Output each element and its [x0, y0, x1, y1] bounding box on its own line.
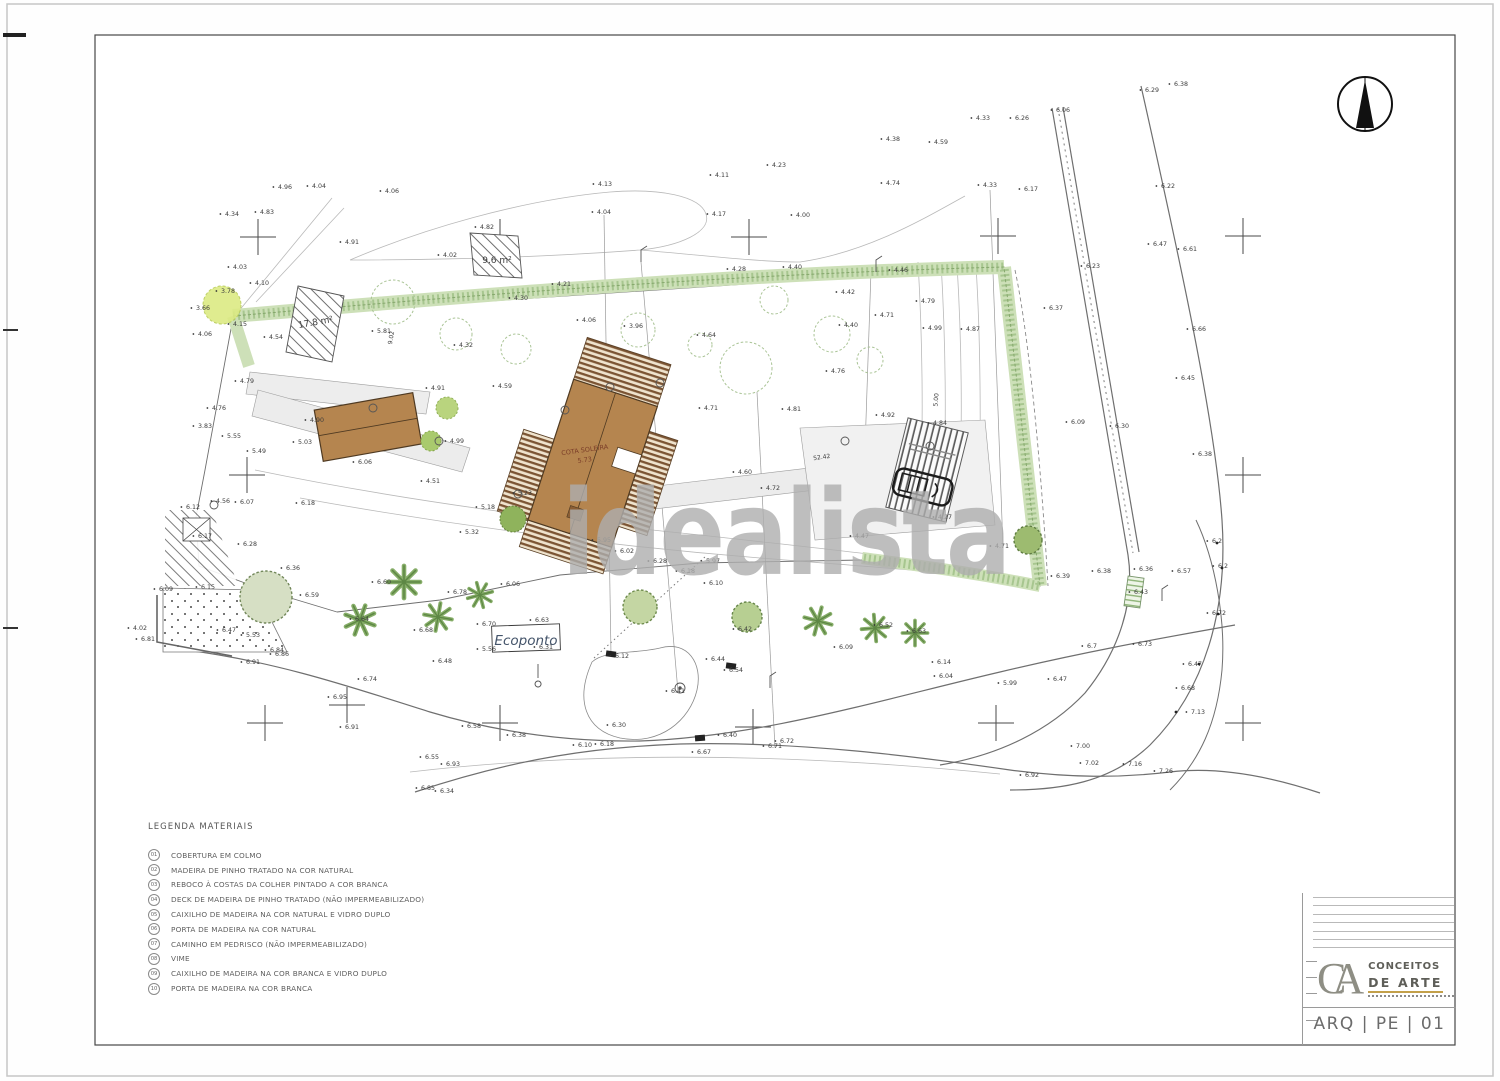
spot-elevation: 6.78 — [453, 589, 467, 596]
spot-point — [593, 183, 595, 185]
spot-elevation: 6.06 — [506, 581, 520, 588]
spot-point — [475, 226, 477, 228]
spot-elevation: 7.02 — [1085, 760, 1099, 767]
spot-point — [1051, 109, 1053, 111]
spot-elevation: 4.79 — [921, 298, 935, 305]
spot-point — [577, 319, 579, 321]
spot-elevation: 6.47 — [1153, 241, 1167, 248]
spot-point — [624, 325, 626, 327]
spot-point — [340, 241, 342, 243]
spot-point — [1178, 248, 1180, 250]
spot-elevation: 4.64 — [702, 332, 716, 339]
spot-point — [1156, 185, 1158, 187]
spot-elevation: 6.66 — [1192, 326, 1206, 333]
spot-elevation: 6.86 — [275, 651, 289, 658]
spot-point — [220, 213, 222, 215]
spot-elevation: 6.38 — [1198, 451, 1212, 458]
spot-point — [433, 660, 435, 662]
spot-elevation: 4.02 — [443, 252, 457, 259]
legend-item-label: CAMINHO EM PEDRISCO (NÃO IMPERMEABILIZAD… — [171, 940, 367, 949]
legend-item: 07CAMINHO EM PEDRISCO (NÃO IMPERMEABILIZ… — [148, 937, 424, 952]
spot-elevation: 4.23 — [772, 162, 786, 169]
spot-point — [978, 184, 980, 186]
legend-item-number: 05 — [148, 909, 160, 921]
spot-elevation: 6.74 — [363, 676, 377, 683]
spot-elevation: 5.99 — [1003, 680, 1017, 687]
spot-point — [462, 725, 464, 727]
spot-elevation: 6.44 — [711, 656, 725, 663]
spot-elevation: 6.91 — [345, 724, 359, 731]
spot-point — [1176, 377, 1178, 379]
spot-elevation: 4.33 — [976, 115, 990, 122]
spot-elevation: 4.17 — [712, 211, 726, 218]
spot-point — [270, 653, 272, 655]
spot-point — [834, 646, 836, 648]
spot-point — [1134, 568, 1136, 570]
spot-elevation: 4.46 — [894, 267, 908, 274]
spot-elevation: 6.43 — [1134, 589, 1148, 596]
spot-elevation: 6.95 — [333, 694, 347, 701]
spot-elevation: 6.47 — [1053, 676, 1067, 683]
spot-point — [216, 290, 218, 292]
spot-point — [414, 629, 416, 631]
spot-elevation: 7.00 — [1076, 743, 1090, 750]
spot-point — [241, 661, 243, 663]
spot-point — [607, 724, 609, 726]
legend-item-number: 04 — [148, 894, 160, 906]
spot-elevation: 6.60 — [377, 579, 391, 586]
spot-point — [247, 450, 249, 452]
spot-elevation: 6.23 — [1086, 263, 1100, 270]
spot-elevation: 6.30 — [612, 722, 626, 729]
spot-point — [530, 619, 532, 621]
spot-point — [998, 682, 1000, 684]
spot-elevation: 6.04 — [939, 673, 953, 680]
spot-point — [727, 268, 729, 270]
spot-elevation: 6.67 — [697, 749, 711, 756]
spot-elevation: 6.47 — [1188, 661, 1202, 668]
spot-point — [222, 435, 224, 437]
spot-point — [441, 763, 443, 765]
spot-elevation: 6.36 — [286, 565, 300, 572]
spot-elevation: 6.06 — [1056, 107, 1070, 114]
brand-tagline — [1368, 995, 1454, 997]
spot-point — [932, 661, 934, 663]
spot-elevation: 4.06 — [385, 188, 399, 195]
spot-elevation: 6.06 — [358, 459, 372, 466]
spot-elevation: 6.10 — [578, 742, 592, 749]
spot-elevation: 4.11 — [715, 172, 729, 179]
spot-point — [372, 581, 374, 583]
spot-elevation: 3.83 — [198, 423, 212, 430]
legend-item-label: CAIXILHO DE MADEIRA NA COR BRANCA E VIDR… — [171, 969, 387, 978]
spot-elevation: 4.02 — [133, 625, 147, 632]
spot-point — [1193, 453, 1195, 455]
spot-point — [874, 624, 876, 626]
spot-elevation: 6.55 — [425, 754, 439, 761]
spot-elevation: 5.49 — [252, 448, 266, 455]
spot-point — [193, 425, 195, 427]
spot-point — [1020, 774, 1022, 776]
legend-item: 02MADEIRA DE PINHO TRATADO NA COR NATURA… — [148, 863, 424, 878]
spot-point — [438, 254, 440, 256]
spot-point — [763, 745, 765, 747]
spot-elevation: 5.23 — [518, 490, 532, 497]
spot-point — [501, 583, 503, 585]
spot-point — [509, 297, 511, 299]
spot-point — [1186, 711, 1188, 713]
legend-item-label: PORTA DE MADEIRA NA COR NATURAL — [171, 925, 316, 934]
plan-label: Ecoponto — [494, 633, 557, 649]
legend-items: 01COBERTURA EM COLMO02MADEIRA DE PINHO T… — [148, 848, 424, 996]
spot-elevation: 6.85 — [421, 785, 435, 792]
spot-elevation: 6.64 — [355, 616, 369, 623]
legend-item: 01COBERTURA EM COLMO — [148, 848, 424, 863]
legend-item-number: 01 — [148, 849, 160, 861]
spot-point — [255, 211, 257, 213]
spot-elevation: 6.09 — [839, 644, 853, 651]
spot-elevation: 6.18 — [600, 741, 614, 748]
spot-elevation: 6.14 — [937, 659, 951, 666]
spot-elevation: 4.76 — [831, 368, 845, 375]
spot-elevation: 4.79 — [240, 378, 254, 385]
spot-elevation: 4.90 — [310, 417, 324, 424]
spot-elevation: 5.18 — [481, 504, 495, 511]
spot-point — [1169, 83, 1171, 85]
legend-item-number: 10 — [148, 983, 160, 995]
spot-elevation: 6.52 — [879, 622, 893, 629]
title-block-rows — [1313, 897, 1454, 956]
spot-point — [907, 630, 909, 632]
spot-point — [416, 787, 418, 789]
spot-elevation: 4.54 — [269, 334, 283, 341]
spot-point — [961, 328, 963, 330]
spot-point — [1019, 188, 1021, 190]
spot-point — [328, 696, 330, 698]
brand-line1: CONCEITOS — [1368, 961, 1454, 972]
legend-materials: LEGENDA MATERIAIS 01COBERTURA EM COLMO02… — [148, 822, 424, 996]
spot-point — [791, 214, 793, 216]
spot-point — [193, 333, 195, 335]
spot-elevation: 6.15 — [201, 584, 215, 591]
spot-elevation: 4.83 — [260, 209, 274, 216]
legend-item: 08VIME — [148, 952, 424, 967]
legend-item-number: 03 — [148, 879, 160, 891]
spot-point — [181, 506, 183, 508]
spot-elevation: 5.32 — [465, 529, 479, 536]
spot-point — [235, 380, 237, 382]
spot-elevation: 6.2 — [1212, 538, 1222, 545]
spot-elevation: 6.59 — [305, 592, 319, 599]
spot-point — [836, 291, 838, 293]
spot-point — [697, 334, 699, 336]
spot-point — [1183, 663, 1185, 665]
spot-point — [718, 734, 720, 736]
spot-point — [127, 627, 129, 629]
spot-point — [477, 648, 479, 650]
spot-elevation: 6.68 — [1181, 685, 1195, 692]
sheet-code: ARQ | PE | 01 — [1303, 1007, 1456, 1034]
spot-point — [1123, 763, 1125, 765]
spot-point — [666, 690, 668, 692]
spot-point — [250, 282, 252, 284]
spot-elevation: 7.16 — [1128, 761, 1142, 768]
spot-elevation: 4.21 — [557, 281, 571, 288]
spot-point — [826, 370, 828, 372]
legend-item-label: DECK DE MADEIRA DE PINHO TRATADO (NÃO IM… — [171, 895, 424, 904]
spot-point — [699, 407, 701, 409]
spot-elevation: 4.81 — [787, 406, 801, 413]
spot-point — [782, 408, 784, 410]
spot-point — [1044, 307, 1046, 309]
spot-elevation: 4.59 — [934, 139, 948, 146]
spot-point — [876, 414, 878, 416]
spot-elevation: 4.82 — [480, 224, 494, 231]
spot-point — [207, 407, 209, 409]
spot-elevation: 4.71 — [880, 312, 894, 319]
spot-point — [775, 740, 777, 742]
spot-elevation: 6.42 — [738, 626, 752, 633]
spot-elevation: 6.68 — [419, 627, 433, 634]
brand-line2: DE ARTE — [1368, 975, 1442, 993]
spot-point — [573, 744, 575, 746]
spot-point — [839, 324, 841, 326]
spot-point — [435, 790, 437, 792]
spot-elevation: 3.78 — [221, 288, 235, 295]
spot-elevation: 6.91 — [246, 659, 260, 666]
spot-point — [595, 743, 597, 745]
spot-point — [191, 307, 193, 309]
spot-elevation: 4.91 — [431, 385, 445, 392]
spot-point — [1048, 678, 1050, 680]
spot-elevation: 4.40 — [788, 264, 802, 271]
legend-item-number: 02 — [148, 864, 160, 876]
spot-point — [724, 669, 726, 671]
spot-elevation: 4.34 — [225, 211, 239, 218]
spot-elevation: 4.84 — [933, 420, 947, 427]
spot-elevation: 6.48 — [438, 658, 452, 665]
legend-item-label: VIME — [171, 954, 190, 963]
plan-label: 5.00 — [932, 393, 940, 407]
spot-point — [340, 726, 342, 728]
legend-item: 10PORTA DE MADEIRA NA COR BRANCA — [148, 981, 424, 996]
spot-point — [448, 591, 450, 593]
spot-point — [875, 314, 877, 316]
spot-elevation: 6.37 — [1049, 305, 1063, 312]
spot-elevation: 6.09 — [1071, 419, 1085, 426]
spot-point — [1010, 117, 1012, 119]
spot-elevation: 4.92 — [881, 412, 895, 419]
spot-elevation: 6.12 — [615, 653, 629, 660]
spot-point — [1140, 89, 1142, 91]
spot-elevation: 6.72 — [1212, 610, 1226, 617]
spot-elevation: 6.70 — [482, 621, 496, 628]
legend-item-number: 06 — [148, 923, 160, 935]
spot-elevation: 4.91 — [345, 239, 359, 246]
spot-elevation: 6.73 — [1138, 641, 1152, 648]
spot-elevation: 4.06 — [582, 317, 596, 324]
spot-point — [767, 164, 769, 166]
spot-elevation: 4.33 — [983, 182, 997, 189]
spot-elevation: 4.04 — [312, 183, 326, 190]
spot-elevation: 6.61 — [1183, 246, 1197, 253]
spot-elevation: 6.57 — [1177, 568, 1191, 575]
spot-point — [928, 422, 930, 424]
spot-point — [889, 269, 891, 271]
spot-elevation: 4.30 — [514, 295, 528, 302]
spot-point — [1051, 575, 1053, 577]
spot-point — [426, 387, 428, 389]
spot-point — [1154, 770, 1156, 772]
legend-item-label: REBOCO À COSTAS DA COLHER PINTADO A COR … — [171, 880, 388, 889]
spot-elevation: 4.32 — [459, 342, 473, 349]
spot-point — [1148, 243, 1150, 245]
spot-elevation: 6.18 — [301, 500, 315, 507]
spot-point — [507, 734, 509, 736]
spot-point — [1172, 570, 1174, 572]
spot-elevation: 6.36 — [1139, 566, 1153, 573]
spot-point — [592, 211, 594, 213]
spot-point — [783, 266, 785, 268]
spot-point — [476, 506, 478, 508]
spot-elevation: 4.87 — [966, 326, 980, 333]
spot-elevation: 4.38 — [886, 136, 900, 143]
spot-elevation: 3.96 — [629, 323, 643, 330]
plan-sheet: 4.964.044.344.834.034.914.064.824.024.13… — [0, 0, 1500, 1081]
spot-elevation: 4.59 — [498, 383, 512, 390]
spot-point — [934, 675, 936, 677]
spot-point — [710, 174, 712, 176]
spot-elevation: 6.92 — [1025, 772, 1039, 779]
spot-point — [881, 138, 883, 140]
spot-elevation: 6.41 — [671, 688, 685, 695]
spot-point — [1071, 745, 1073, 747]
spot-point — [380, 190, 382, 192]
spot-elevation: 6.07 — [240, 499, 254, 506]
spot-point — [692, 751, 694, 753]
spot-point — [193, 535, 195, 537]
spot-elevation: 5.03 — [298, 439, 312, 446]
spot-elevation: 6.58 — [467, 723, 481, 730]
spot-point — [1206, 540, 1208, 542]
spot-point — [1212, 565, 1214, 567]
company-logo: CA CONCEITOS DE ARTE — [1317, 959, 1454, 999]
legend-item-number: 07 — [148, 938, 160, 950]
spot-elevation: 6.63 — [912, 628, 926, 635]
spot-point — [1176, 687, 1178, 689]
spot-point — [264, 336, 266, 338]
spot-point — [1133, 643, 1135, 645]
spot-point — [454, 344, 456, 346]
spot-point — [929, 141, 931, 143]
spot-point — [358, 678, 360, 680]
spot-point — [196, 586, 198, 588]
spot-elevation: 6.28 — [243, 541, 257, 548]
spot-point — [241, 634, 243, 636]
logo-monogram: CA — [1317, 959, 1366, 999]
plan-label: 9.6 m² — [482, 256, 512, 266]
spot-elevation: 4.51 — [426, 478, 440, 485]
spot-elevation: 4.40 — [844, 322, 858, 329]
spot-point — [238, 543, 240, 545]
spot-elevation: 4.10 — [255, 280, 269, 287]
spot-point — [305, 419, 307, 421]
legend-item-label: MADEIRA DE PINHO TRATADO NA COR NATURAL — [171, 866, 353, 875]
spot-elevation: 4.99 — [450, 438, 464, 445]
spot-elevation: 7.13 — [1191, 709, 1205, 716]
spot-point — [1129, 591, 1131, 593]
spot-point — [217, 629, 219, 631]
spot-point — [235, 501, 237, 503]
legend-item-label: PORTA DE MADEIRA NA COR BRANCA — [171, 984, 313, 993]
spot-elevation: 6.38 — [512, 732, 526, 739]
spot-elevation: 6.54 — [729, 667, 743, 674]
spot-point — [293, 441, 295, 443]
legend-item-number: 09 — [148, 968, 160, 980]
spot-point — [1066, 421, 1068, 423]
legend-item: 05CAIXILHO DE MADEIRA NA COR NATURAL E V… — [148, 907, 424, 922]
spot-point — [513, 492, 515, 494]
spot-elevation: 6.45 — [1181, 375, 1195, 382]
spot-point — [421, 480, 423, 482]
spot-elevation: 6.7 — [1087, 643, 1097, 650]
spot-elevation: 6.93 — [446, 761, 460, 768]
spot-point — [460, 531, 462, 533]
spot-elevation: 6.39 — [1056, 573, 1070, 580]
spot-point — [881, 182, 883, 184]
spot-point — [733, 628, 735, 630]
legend-item: 09CAIXILHO DE MADEIRA NA COR BRANCA E VI… — [148, 966, 424, 981]
spot-elevation: 6.09 — [159, 586, 173, 593]
spot-point — [552, 283, 554, 285]
title-block: CA CONCEITOS DE ARTE ARQ | PE | 01 — [1302, 893, 1456, 1045]
spot-point — [154, 588, 156, 590]
spot-elevation: 4.76 — [212, 405, 226, 412]
spot-elevation: 5.55 — [227, 433, 241, 440]
spot-elevation: 4.42 — [841, 289, 855, 296]
spot-elevation: 4.71 — [704, 405, 718, 412]
spot-point — [228, 323, 230, 325]
spot-elevation: 4.99 — [928, 325, 942, 332]
legend-item-number: 08 — [148, 953, 160, 965]
spot-elevation: 6.22 — [1161, 183, 1175, 190]
spot-elevation: 4.96 — [278, 184, 292, 191]
spot-point — [916, 300, 918, 302]
spot-elevation: 4.04 — [597, 209, 611, 216]
idealista-watermark: idealista — [562, 474, 1009, 592]
spot-point — [273, 186, 275, 188]
spot-elevation: 6.34 — [440, 788, 454, 795]
spot-elevation: 4.15 — [233, 321, 247, 328]
spot-point — [1207, 612, 1209, 614]
spot-elevation: 6.2 — [1218, 563, 1228, 570]
spot-point — [477, 623, 479, 625]
spot-elevation: 6.17 — [1024, 186, 1038, 193]
spot-elevation: 7.26 — [1159, 768, 1173, 775]
spot-elevation: 6.30 — [1115, 423, 1129, 430]
spot-elevation: 6.40 — [723, 732, 737, 739]
spot-elevation: 6.47 — [222, 627, 236, 634]
spot-elevation: 5.53 — [246, 632, 260, 639]
spot-point — [706, 658, 708, 660]
spot-elevation: 4.56 — [216, 498, 230, 505]
spot-point — [372, 330, 374, 332]
legend-item: 03REBOCO À COSTAS DA COLHER PINTADO A CO… — [148, 878, 424, 893]
spot-elevation: 6.26 — [1015, 115, 1029, 122]
spot-point — [228, 266, 230, 268]
spot-point — [1092, 570, 1094, 572]
spot-point — [1080, 762, 1082, 764]
